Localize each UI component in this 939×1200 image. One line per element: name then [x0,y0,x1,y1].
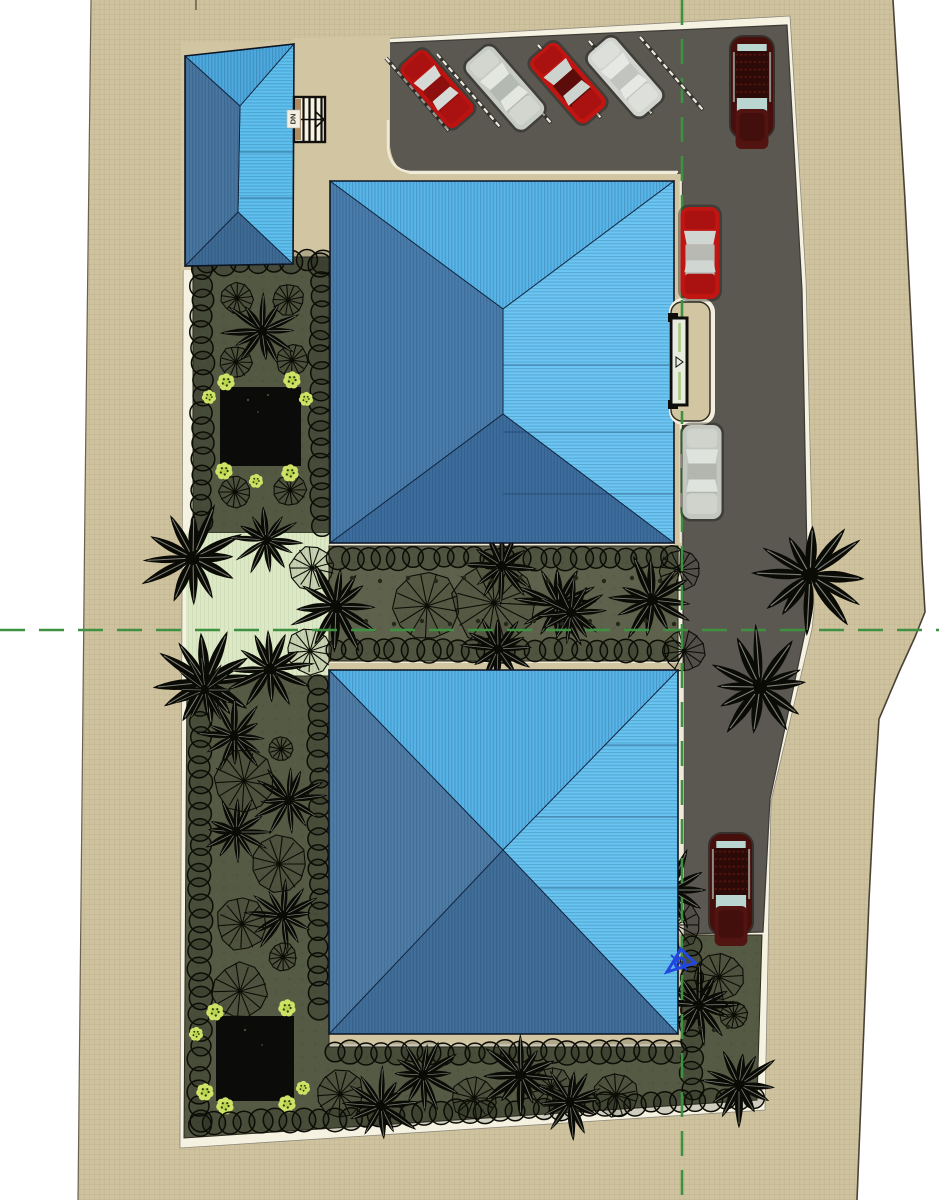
svg-text:DN: DN [288,114,297,125]
